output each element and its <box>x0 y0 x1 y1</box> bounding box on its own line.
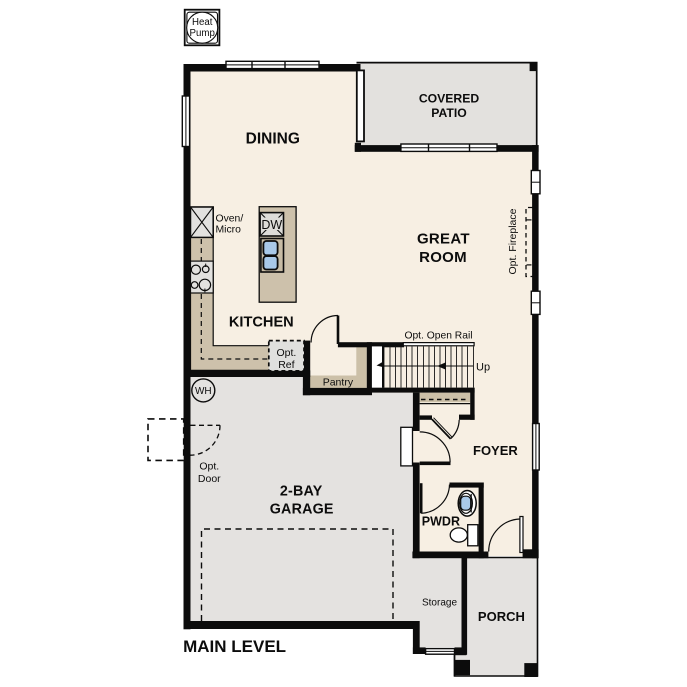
svg-text:GARAGE: GARAGE <box>270 502 334 518</box>
svg-text:PATIO: PATIO <box>431 106 466 120</box>
svg-text:DW: DW <box>261 218 282 232</box>
svg-text:Opt. Fireplace: Opt. Fireplace <box>507 208 519 274</box>
svg-text:Up: Up <box>476 361 490 373</box>
svg-text:Ref: Ref <box>278 359 294 371</box>
svg-text:Pump: Pump <box>190 28 215 39</box>
svg-text:WH: WH <box>195 386 212 397</box>
svg-text:FOYER: FOYER <box>473 443 518 458</box>
svg-text:Storage: Storage <box>422 598 457 609</box>
svg-text:2-BAY: 2-BAY <box>280 484 323 500</box>
svg-text:Opt. Open Rail: Opt. Open Rail <box>404 330 472 341</box>
svg-text:Micro: Micro <box>216 225 242 236</box>
svg-text:Oven/: Oven/ <box>216 213 244 224</box>
svg-text:Heat: Heat <box>192 17 213 28</box>
svg-text:Opt.: Opt. <box>276 347 296 359</box>
svg-text:COVERED: COVERED <box>419 92 479 106</box>
svg-text:KITCHEN: KITCHEN <box>229 315 294 331</box>
svg-text:PWDR: PWDR <box>422 515 460 529</box>
svg-text:PORCH: PORCH <box>478 609 525 624</box>
svg-text:GREAT: GREAT <box>417 231 470 248</box>
svg-text:MAIN LEVEL: MAIN LEVEL <box>183 637 286 656</box>
svg-text:Opt.: Opt. <box>199 461 219 473</box>
svg-text:ROOM: ROOM <box>419 249 467 266</box>
svg-text:DINING: DINING <box>246 131 300 148</box>
svg-text:Pantry: Pantry <box>323 376 354 388</box>
svg-text:Door: Door <box>198 473 221 485</box>
